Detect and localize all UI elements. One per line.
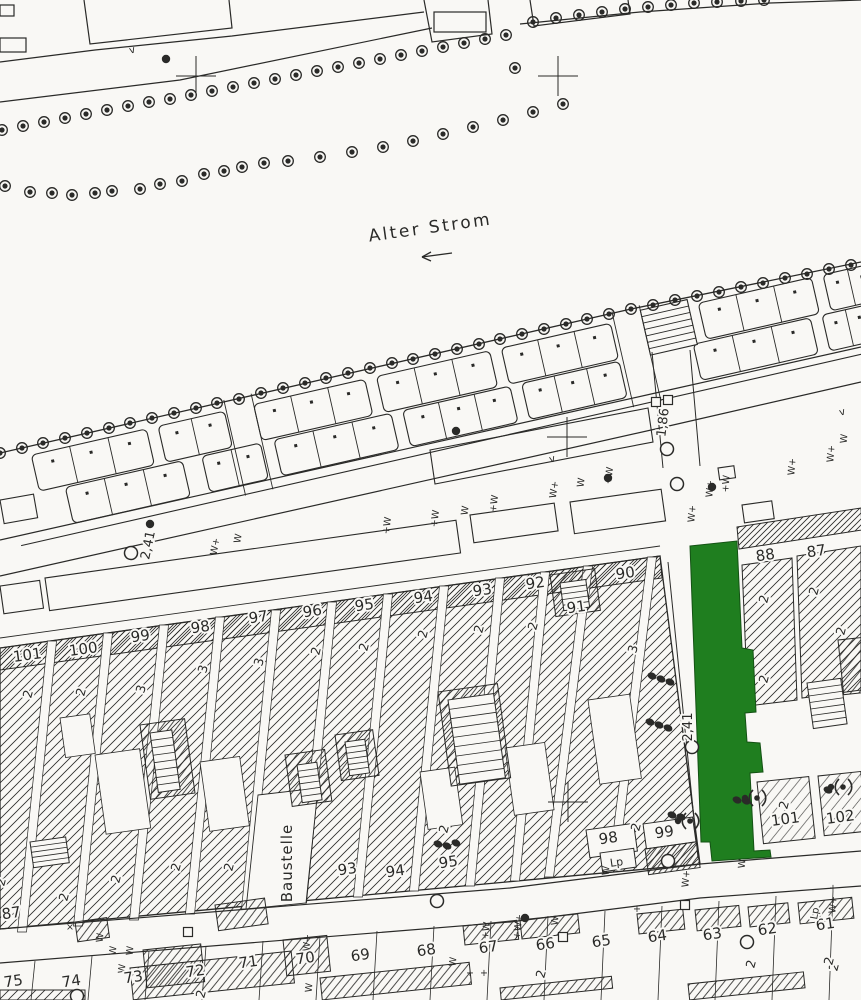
parcel-number: 66 <box>535 934 556 954</box>
parcel-number: 74 <box>61 971 82 991</box>
stair-symbol <box>30 837 69 868</box>
parcel-number: 99 <box>654 822 675 842</box>
parcel-number: 94 <box>385 861 406 881</box>
parcel-number: 62 <box>757 919 778 939</box>
parcel-number: 95 <box>438 852 459 872</box>
survey-circle-icon <box>431 895 444 908</box>
survey-circle-icon <box>671 478 684 491</box>
utility-mark: + <box>480 968 488 979</box>
parcel-number: 75 <box>3 971 24 991</box>
parcel-number: 97 <box>248 607 269 627</box>
parcel-number: 73 <box>123 967 144 987</box>
survey-circle-icon <box>741 936 754 949</box>
utility-mark: × <box>66 922 74 933</box>
parcel-number: 72 <box>185 961 206 981</box>
utility-mark: W+ <box>825 445 837 463</box>
parcel-number: 95 <box>354 595 375 615</box>
survey-dot-icon <box>452 427 460 435</box>
utility-mark: W <box>839 433 851 444</box>
parcel-number: 67 <box>478 937 499 957</box>
parcel-number: 90 <box>615 563 636 583</box>
parcel-number: 70 <box>295 948 316 968</box>
map-canvas: W+W+W+WW+WW+W+WW+W++WW+W+WWWWW++W+W+W+W+… <box>0 0 861 1000</box>
survey-square-icon <box>664 396 673 405</box>
utility-mark: + <box>829 883 837 894</box>
utility-mark: W <box>108 945 120 956</box>
survey-circle-icon <box>662 855 675 868</box>
utility-mark: W <box>125 945 137 956</box>
utility-mark: W <box>304 982 316 993</box>
stair-symbol <box>345 739 370 775</box>
utility-mark: + <box>466 968 474 979</box>
parcel-number: 87 <box>1 903 22 923</box>
parcel-number: 93 <box>472 580 493 600</box>
parcel-number: 68 <box>416 940 437 960</box>
utility-mark: W+ <box>680 870 692 888</box>
survey-circle-icon <box>71 990 84 1000</box>
survey-square-icon <box>559 933 568 942</box>
cadastral-map: W+W+W+WW+WW+W+WW+W++WW+W+WWWWW++W+W+W+W+… <box>0 0 861 1000</box>
utility-mark: W <box>737 858 749 869</box>
lp-label-block: Lp <box>609 855 624 870</box>
baustelle-label: Baustelle <box>278 824 296 902</box>
parcel-number: 99 <box>130 626 151 646</box>
utility-mark: + <box>633 904 641 915</box>
utility-mark: +W <box>720 474 733 493</box>
measure-241-right: 2,41 <box>681 713 696 742</box>
parcel-number: 71 <box>238 952 259 972</box>
parcel-number: 91 <box>566 597 587 617</box>
survey-dot-icon <box>146 520 154 528</box>
parcel-number: 88 <box>755 545 776 565</box>
utility-mark: W+ <box>827 896 839 914</box>
utility-mark: W <box>95 932 107 943</box>
utility-mark: W+ <box>704 480 716 498</box>
survey-square-icon <box>184 928 193 937</box>
parcel-number: 98 <box>598 828 619 848</box>
stair-symbol <box>807 678 847 728</box>
parcel-number: 69 <box>350 945 371 965</box>
utility-mark: W+ <box>786 458 798 476</box>
utility-mark: W <box>448 956 460 967</box>
survey-circle-icon <box>661 443 674 456</box>
survey-square-icon <box>652 398 661 407</box>
lp-label-right: Lp <box>809 907 822 921</box>
survey-square-icon <box>681 901 690 910</box>
parcel-number: 63 <box>702 924 723 944</box>
parcel-number: 92 <box>525 573 546 593</box>
utility-mark: W <box>550 915 562 926</box>
parcel-number: 94 <box>413 587 434 607</box>
utility-mark: W+ <box>686 505 698 523</box>
survey-dot-icon <box>162 55 170 63</box>
parcel-number: 98 <box>190 617 211 637</box>
survey-circle-icon <box>125 547 138 560</box>
parcel-number: 65 <box>591 931 612 951</box>
parcel-number: 87 <box>806 541 827 561</box>
parcel-number: 64 <box>647 926 668 946</box>
parcel-number: 93 <box>337 859 358 879</box>
parcel-number: 96 <box>302 601 323 621</box>
